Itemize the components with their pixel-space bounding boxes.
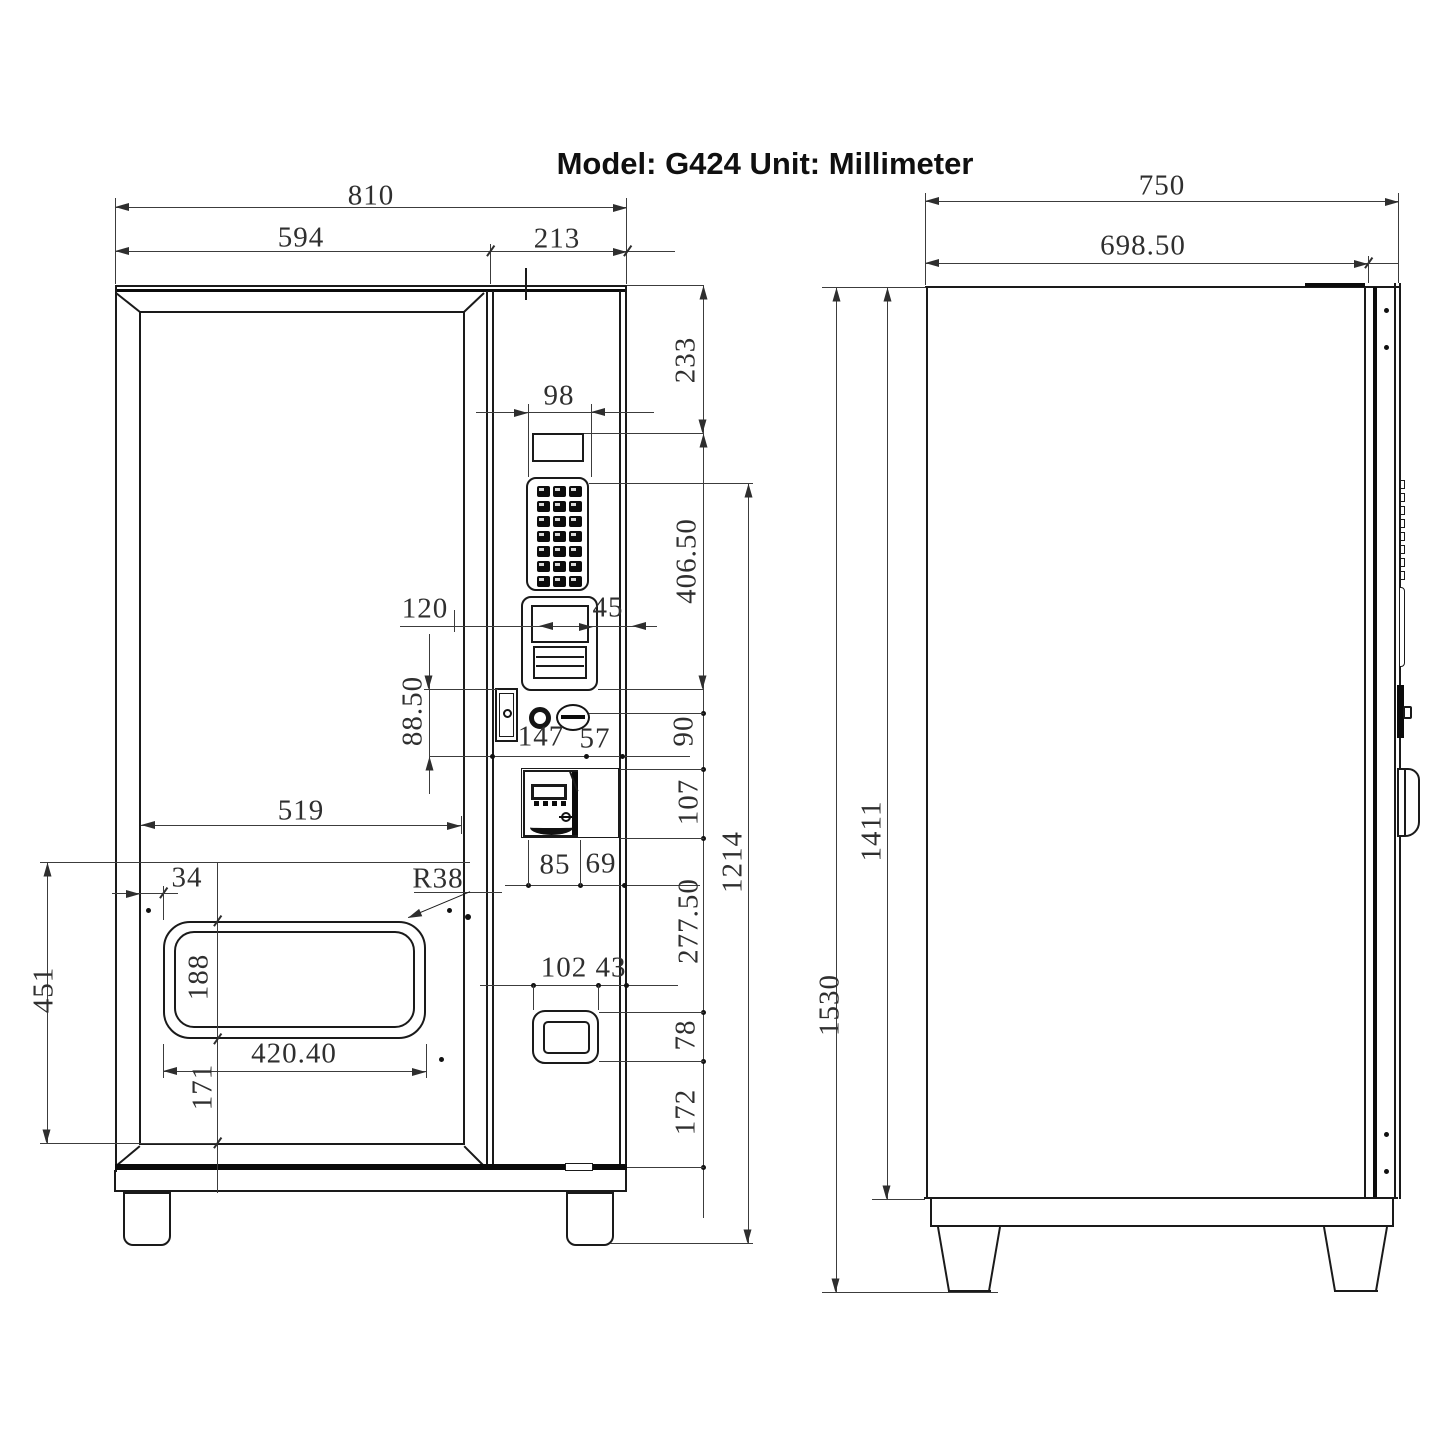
- line: [988, 1227, 1001, 1291]
- arrow-head: [426, 756, 434, 770]
- line: [476, 412, 654, 413]
- line: [925, 263, 1399, 264]
- line: [426, 1044, 427, 1078]
- line: [115, 1164, 627, 1170]
- keypad-key: [553, 486, 566, 497]
- rect: [532, 433, 584, 462]
- arc: [530, 820, 573, 835]
- keypad-key: [537, 546, 550, 557]
- arrow-head: [591, 408, 605, 416]
- dim-front-coin-to-edge: 57: [580, 725, 611, 754]
- arrow-head: [744, 1229, 752, 1243]
- rect: [543, 1021, 590, 1054]
- keypad-key: [537, 561, 550, 572]
- dim-front-outlet-offset: 102: [541, 954, 588, 983]
- line: [534, 801, 539, 806]
- dim-front-pickup-height: 188: [185, 954, 214, 1001]
- line: [1392, 1199, 1394, 1227]
- arrow-head: [115, 203, 129, 211]
- line: [552, 801, 557, 806]
- line: [924, 1197, 1398, 1199]
- dot: [1384, 1132, 1389, 1137]
- rect: [123, 1192, 171, 1246]
- line: [1305, 283, 1365, 287]
- arrow-head: [1385, 198, 1399, 206]
- line: [505, 885, 700, 886]
- line: [591, 404, 592, 477]
- circle: [503, 709, 512, 718]
- line: [589, 483, 753, 484]
- line: [528, 404, 529, 477]
- line: [163, 886, 164, 920]
- line: [620, 769, 704, 770]
- arrow-head: [632, 622, 646, 630]
- keypad-key: [553, 546, 566, 557]
- line: [598, 689, 704, 690]
- keypad-key: [537, 486, 550, 497]
- arrow-head: [141, 821, 155, 829]
- rect: [1400, 480, 1405, 489]
- dim-front-bill-offset: 120: [402, 595, 449, 624]
- dot: [1384, 345, 1389, 350]
- dim-front-outlet-height: 78: [672, 1020, 701, 1051]
- dot: [1384, 1169, 1389, 1174]
- arrow-head: [163, 1067, 177, 1075]
- arrow-head: [447, 822, 461, 830]
- arrow-head: [745, 483, 753, 497]
- dim-side-body-height: 1411: [858, 801, 887, 862]
- line: [492, 291, 494, 1167]
- arrow-head: [833, 287, 841, 301]
- arrow-head: [44, 862, 52, 876]
- dim-front-coinmech-to-edge: 69: [586, 850, 617, 879]
- arrow-head: [883, 1185, 891, 1199]
- line: [620, 838, 704, 839]
- arrow-head: [699, 419, 707, 433]
- keypad-key: [553, 501, 566, 512]
- line: [836, 287, 837, 1292]
- dim-side-overall-height: 1530: [816, 974, 845, 1036]
- line: [822, 287, 926, 288]
- keypad-key: [537, 516, 550, 527]
- line: [872, 1199, 925, 1200]
- dot: [1384, 308, 1389, 313]
- line: [1375, 1227, 1388, 1291]
- line: [400, 626, 657, 627]
- dim-front-lock-height: 88.50: [399, 676, 428, 746]
- dim-front-coinmech-height: 107: [675, 779, 704, 826]
- line: [1404, 770, 1406, 835]
- line: [1334, 1290, 1378, 1292]
- line: [1398, 193, 1399, 283]
- line: [619, 291, 621, 1167]
- rect: [1397, 768, 1420, 837]
- line: [40, 1143, 218, 1144]
- arrow-head: [925, 259, 939, 267]
- line: [115, 285, 627, 287]
- rect: [1400, 493, 1405, 502]
- line: [533, 985, 534, 1010]
- line: [115, 198, 116, 284]
- arrow-head: [126, 890, 140, 898]
- rect: [565, 1163, 593, 1171]
- line: [461, 816, 462, 834]
- arrow-head: [884, 287, 892, 301]
- dim-front-pickup-width: 420.40: [251, 1040, 337, 1069]
- line: [589, 713, 704, 714]
- dot: [490, 754, 495, 759]
- line: [536, 665, 584, 667]
- dot: [447, 908, 452, 913]
- line: [543, 801, 548, 806]
- dim-front-outlet-to-bottom: 172: [672, 1089, 701, 1136]
- keypad-key: [569, 576, 582, 587]
- keypad-key: [537, 531, 550, 542]
- dot: [620, 754, 625, 759]
- line: [625, 285, 627, 1172]
- line: [114, 1190, 627, 1192]
- line: [937, 1227, 950, 1291]
- keypad-key: [553, 561, 566, 572]
- keypad-key: [569, 486, 582, 497]
- line: [429, 756, 690, 757]
- rect: [1403, 706, 1412, 719]
- dim-front-coin-offset: 147: [518, 723, 565, 752]
- line: [599, 1061, 704, 1062]
- line: [627, 285, 704, 286]
- arrow-head: [514, 409, 528, 417]
- rect: [1400, 545, 1405, 554]
- line: [40, 862, 470, 863]
- dim-front-keypad-width: 98: [544, 382, 575, 411]
- dim-front-top-to-display: 233: [672, 337, 701, 384]
- line: [163, 1044, 164, 1078]
- line: [115, 292, 140, 313]
- arrow-head: [700, 433, 708, 447]
- line: [424, 689, 498, 690]
- line: [115, 289, 627, 292]
- line: [559, 816, 572, 818]
- dim-front-lower-door-height: 451: [30, 967, 59, 1014]
- arrow-head: [925, 197, 939, 205]
- arrow-head: [579, 623, 593, 631]
- line: [925, 193, 926, 285]
- line: [463, 292, 484, 312]
- line: [528, 840, 529, 886]
- line: [112, 893, 178, 894]
- dim-front-keypad-to-ground: 1214: [719, 831, 748, 893]
- dim-front-overall-width: 810: [348, 182, 395, 211]
- dim-front-pickup-radius: R38: [412, 865, 463, 894]
- dot: [622, 883, 627, 888]
- dim-front-pickup-to-bottom: 171: [189, 1064, 218, 1111]
- keypad-key: [553, 576, 566, 587]
- rect: [1400, 571, 1405, 580]
- technical-drawing: Model: G424 Unit: Millimeter 810 594 213…: [0, 0, 1445, 1445]
- dim-front-pickup-offset: 34: [172, 864, 203, 893]
- dot: [146, 908, 151, 913]
- keypad-key: [569, 501, 582, 512]
- dim-side-overall-depth: 750: [1139, 172, 1186, 201]
- line: [625, 1170, 627, 1192]
- keypad-key: [553, 531, 566, 542]
- dim-front-bill-slot-width: 45: [593, 594, 624, 623]
- line: [480, 985, 678, 986]
- arrow-head: [115, 247, 129, 255]
- rect: [1399, 587, 1405, 667]
- line: [822, 1292, 998, 1293]
- rect: [1400, 558, 1405, 567]
- arrow-head: [699, 675, 707, 689]
- rect: [566, 1192, 614, 1246]
- dim-front-display-to-bill: 406.50: [673, 518, 702, 604]
- line: [1399, 283, 1401, 1199]
- dim-front-door-width: 594: [278, 224, 325, 253]
- line: [610, 1243, 753, 1244]
- keypad-key: [553, 516, 566, 527]
- line: [627, 1167, 704, 1168]
- dim-side-body-depth: 698.50: [1100, 232, 1186, 261]
- keypad-key: [569, 531, 582, 542]
- rect: [1400, 506, 1405, 515]
- line: [1368, 256, 1369, 283]
- dim-front-mech-to-pickup: 277.50: [675, 878, 704, 964]
- line: [1373, 287, 1377, 1197]
- arrow-head: [539, 622, 553, 630]
- line: [486, 291, 488, 1167]
- line: [114, 1170, 116, 1192]
- keypad-key: [537, 501, 550, 512]
- line: [930, 1199, 932, 1227]
- line: [536, 656, 584, 658]
- line: [115, 285, 117, 1172]
- dim-front-outlet-to-edge: 43: [596, 954, 627, 983]
- rect: [533, 646, 587, 679]
- dim-front-panel-width: 213: [534, 225, 581, 254]
- keypad-key: [537, 576, 550, 587]
- line: [887, 287, 888, 1199]
- arrow-head: [43, 1129, 51, 1143]
- line: [580, 840, 581, 886]
- line: [561, 801, 566, 806]
- rect: [531, 784, 567, 800]
- dot: [439, 1057, 444, 1062]
- line: [1364, 287, 1366, 1197]
- keypad-key: [569, 516, 582, 527]
- dim-front-window-width: 519: [278, 797, 325, 826]
- line: [1323, 1227, 1336, 1291]
- arrow-head: [613, 204, 627, 212]
- line: [598, 985, 599, 1010]
- keypad-key: [569, 561, 582, 572]
- dim-front-coin-gap: 90: [670, 716, 699, 747]
- arrow-head: [700, 285, 708, 299]
- dim-front-coinmech-width: 85: [540, 851, 571, 880]
- line: [926, 287, 928, 1199]
- dot: [465, 914, 471, 920]
- line: [599, 1012, 704, 1013]
- arrow-head: [832, 1278, 840, 1292]
- drawing-title: Model: G424 Unit: Millimeter: [400, 146, 1130, 182]
- line: [584, 433, 704, 434]
- arrow-head: [412, 1068, 426, 1076]
- line: [561, 715, 585, 719]
- keypad-key: [569, 546, 582, 557]
- line: [525, 268, 527, 300]
- line: [115, 251, 675, 252]
- rect: [1400, 519, 1405, 528]
- line: [454, 610, 455, 632]
- rect: [1400, 532, 1405, 541]
- line: [1394, 283, 1396, 1199]
